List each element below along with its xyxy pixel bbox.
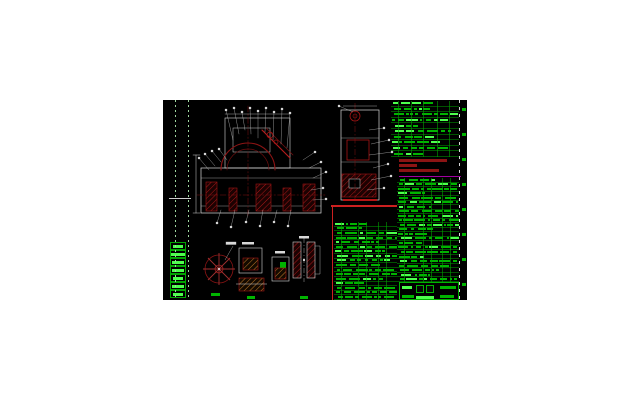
drawing-frame	[163, 100, 467, 300]
frame-border-right	[459, 100, 460, 300]
frame-ruler-tick	[462, 158, 466, 161]
detail-label	[211, 293, 220, 296]
detail-label	[247, 296, 255, 299]
frame-ruler-tick	[462, 108, 466, 111]
frame-ruler-tick	[462, 283, 466, 286]
red-divider-line	[331, 205, 397, 207]
red-divider-vline	[332, 205, 333, 300]
frame-ruler-tick	[462, 208, 466, 211]
frame-border-left	[188, 100, 189, 300]
frame-ruler-tick	[462, 233, 466, 236]
detail-label	[280, 262, 286, 270]
frame-border-left	[175, 100, 176, 300]
frame-ruler-tick	[462, 183, 466, 186]
screenshot-page	[0, 0, 640, 400]
frame-ruler-tick	[462, 258, 466, 261]
detail-label	[300, 296, 308, 299]
cad-drawing-canvas[interactable]	[163, 100, 467, 300]
frame-ruler-tick	[462, 133, 466, 136]
